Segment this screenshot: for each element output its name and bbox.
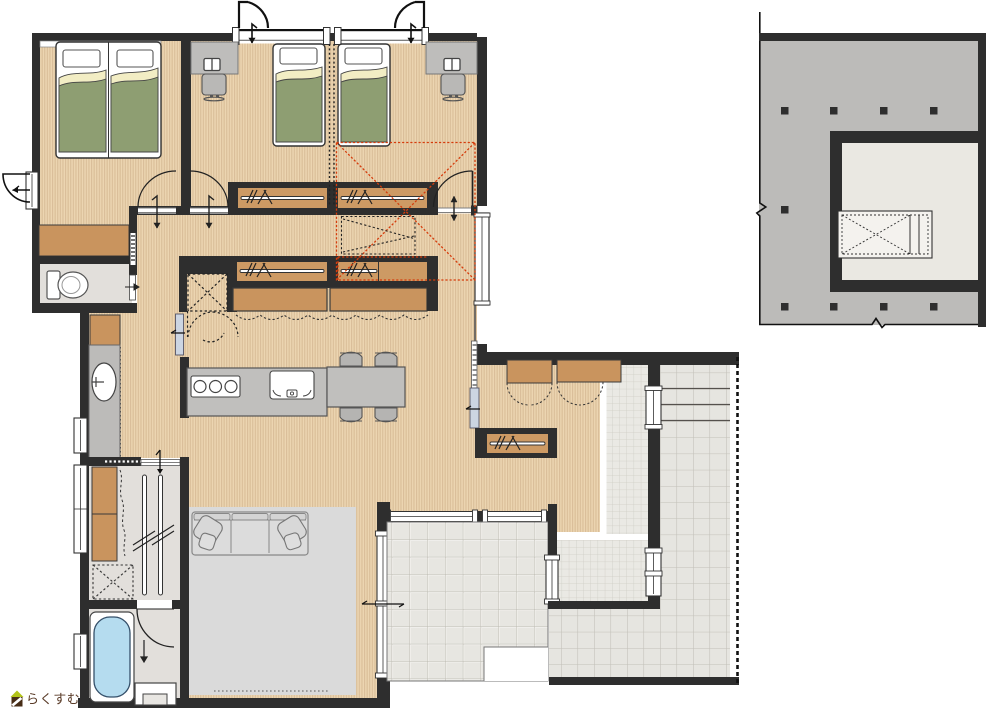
svg-text:らくすむ: らくすむ xyxy=(26,692,80,707)
